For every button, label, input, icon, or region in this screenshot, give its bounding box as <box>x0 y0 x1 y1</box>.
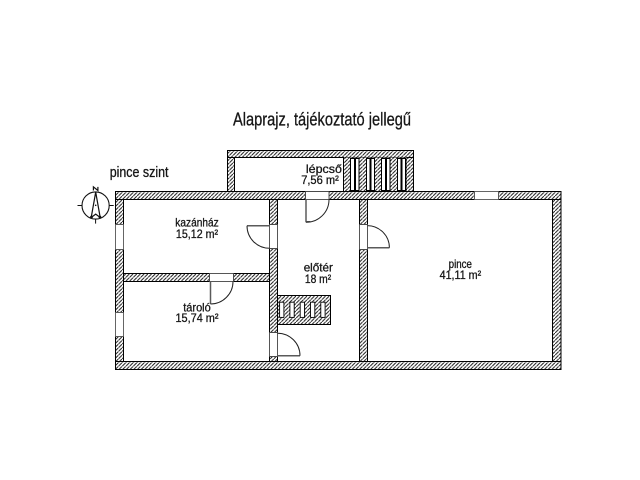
svg-text:15,12 m²: 15,12 m² <box>176 227 218 241</box>
svg-text:18 m²: 18 m² <box>305 272 331 286</box>
svg-text:7,56 m²: 7,56 m² <box>301 173 339 187</box>
svg-text:41,11 m²: 41,11 m² <box>440 268 482 282</box>
svg-text:pince szint: pince szint <box>110 165 169 181</box>
svg-text:15,74 m²: 15,74 m² <box>176 311 219 325</box>
svg-text:Alaprajz, tájékoztató jellegű: Alaprajz, tájékoztató jellegű <box>233 110 411 130</box>
